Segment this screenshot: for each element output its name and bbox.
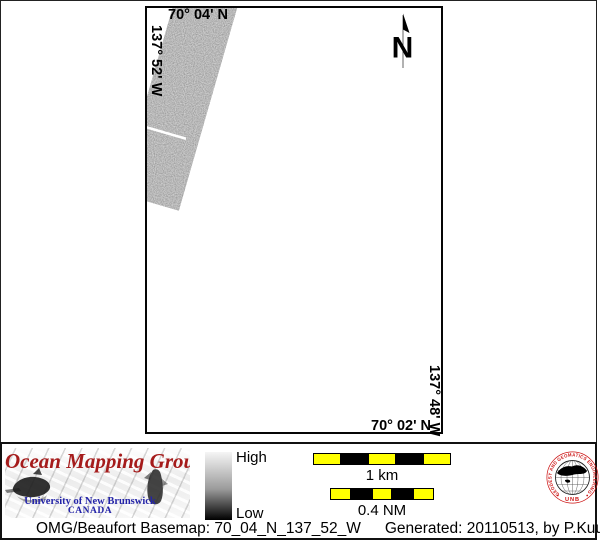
scalebar-segment: [341, 453, 369, 465]
scalebar-segment: [396, 453, 424, 465]
scalebar-km-label: 1 km: [313, 468, 451, 483]
scalebar-segment: [330, 488, 351, 500]
scalebar-segment: [392, 488, 413, 500]
depth-colorbar: [205, 452, 232, 520]
colorbar-low-label: Low: [236, 506, 264, 521]
map-frame: N 70° 04' N 137° 52' W 137° 48' W 70° 02…: [145, 6, 443, 434]
colorbar-high-label: High: [236, 450, 267, 465]
logo-title: Ocean Mapping Group: [5, 451, 177, 472]
footer-basemap-text: OMG/Beaufort Basemap: 70_04_N_137_52_W: [36, 520, 361, 537]
sonar-swath-layer: N: [147, 8, 441, 432]
scalebar-nm-label: 0.4 NM: [330, 503, 434, 518]
label-latitude-top: 70° 04' N: [168, 8, 228, 23]
footer-generated-text: Generated: 20110513, by P.Kuus: [385, 520, 600, 537]
north-label: N: [392, 32, 414, 65]
omg-logo: Ocean Mapping Group University of New Br…: [5, 448, 190, 518]
footer-caption: OMG/Beaufort Basemap: 70_04_N_137_52_W G…: [36, 520, 600, 537]
north-arrow-icon: N: [392, 14, 414, 69]
legend-panel: Ocean Mapping Group University of New Br…: [0, 442, 597, 540]
logo-country: CANADA: [5, 507, 175, 517]
unb-seal-icon: GEODESY AND GEOMATICS ENGINEERING UNB: [546, 450, 599, 505]
scalebar-segment: [368, 453, 396, 465]
scalebar-km: [313, 453, 451, 465]
label-longitude-left: 137° 52' W: [149, 25, 164, 96]
scalebar-nm: [330, 488, 434, 500]
scalebar-segment: [413, 488, 434, 500]
scalebar-segment: [423, 453, 451, 465]
scalebar-segment: [351, 488, 372, 500]
scalebar-segment: [372, 488, 393, 500]
label-latitude-bottom: 70° 02' N: [371, 419, 431, 434]
scalebar-segment: [313, 453, 341, 465]
seal-unb-text: UNB: [565, 497, 580, 503]
